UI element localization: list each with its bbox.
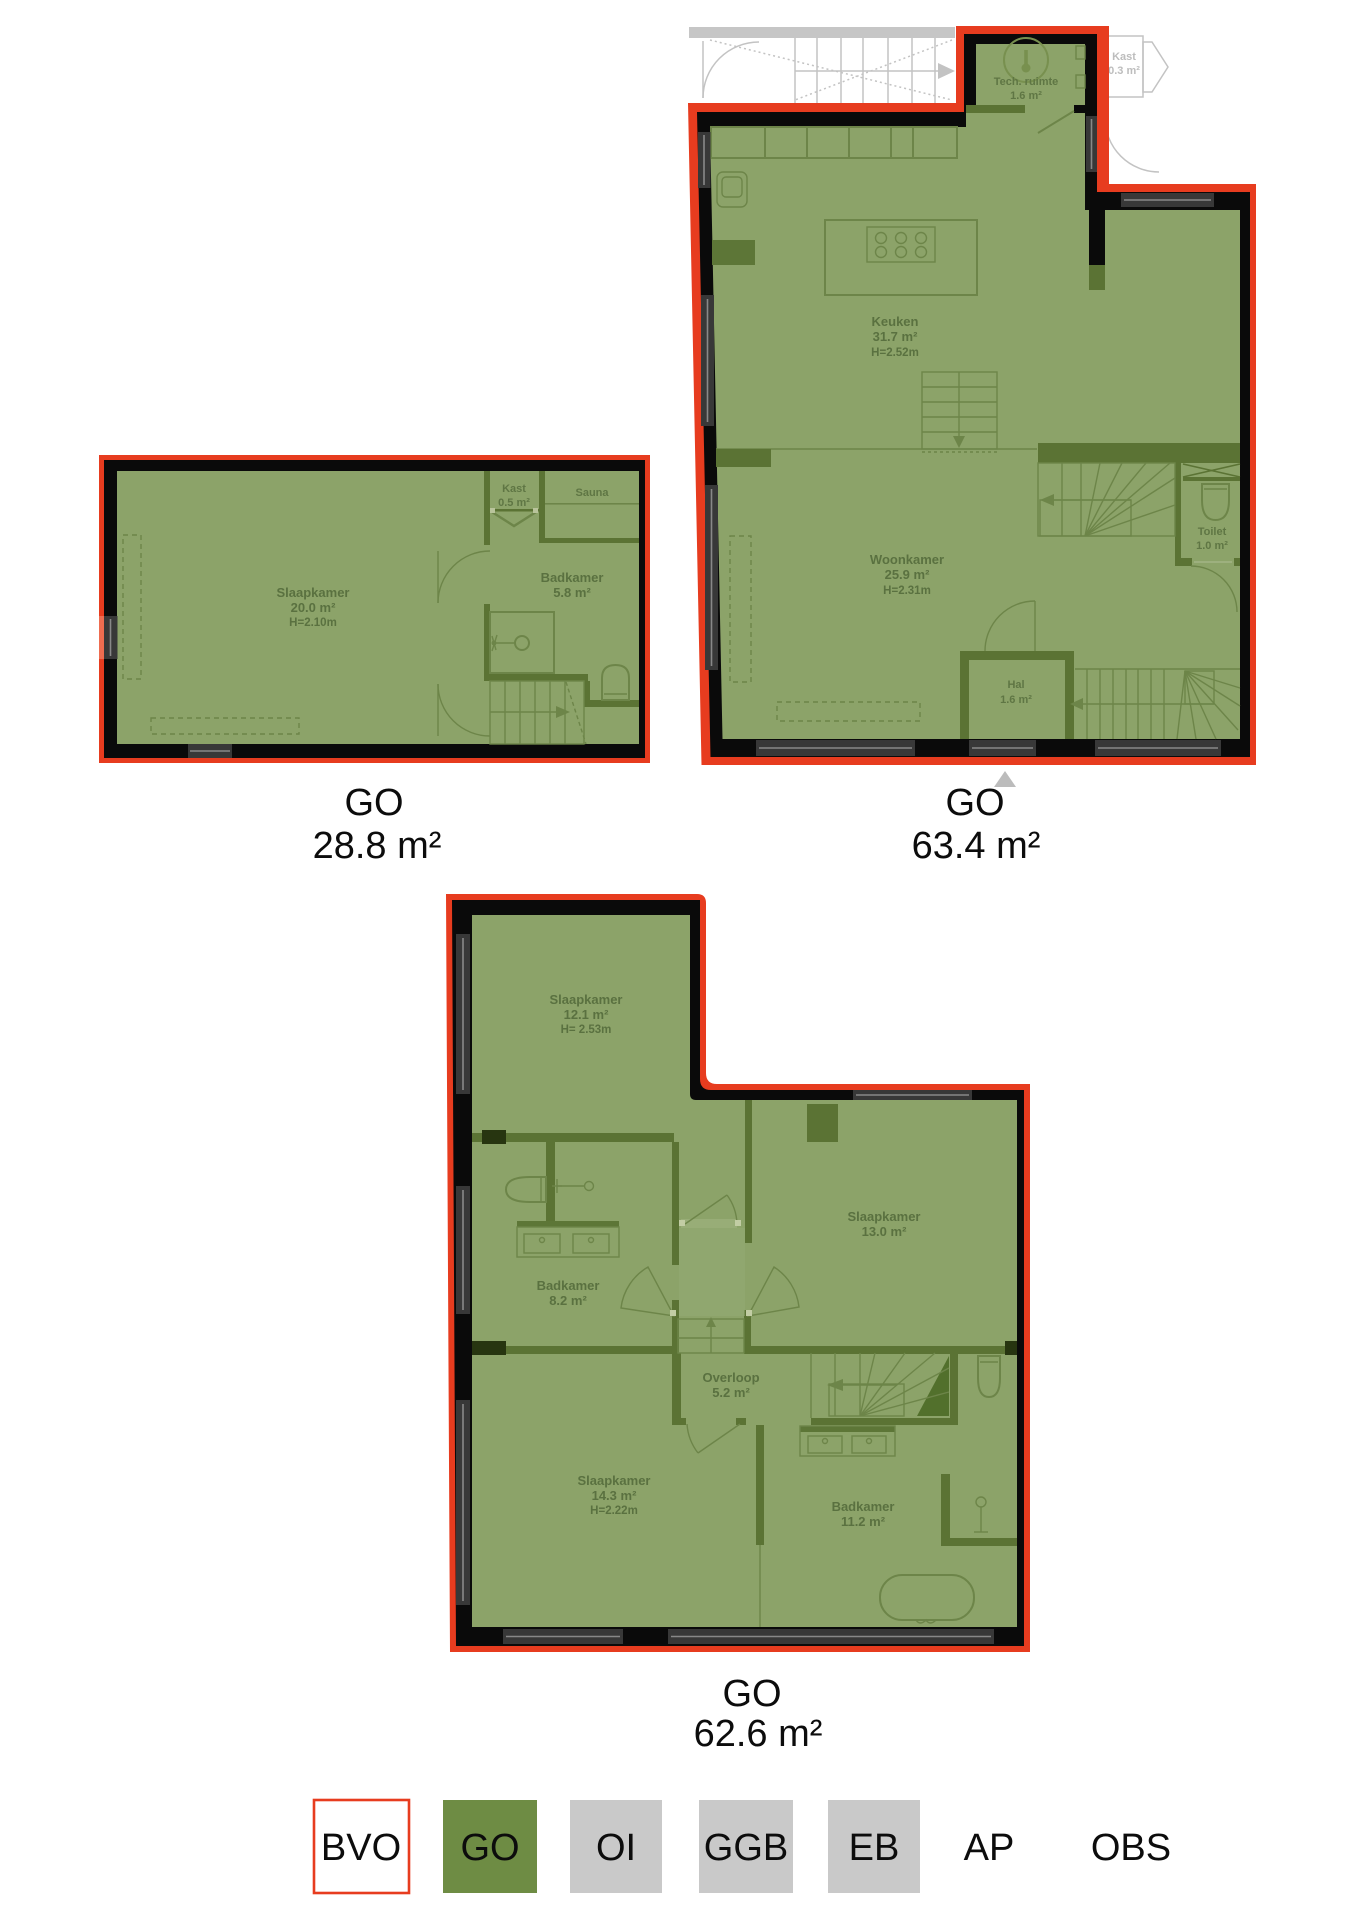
svg-text:5.8 m²: 5.8 m² — [553, 585, 591, 600]
svg-text:EB: EB — [849, 1827, 900, 1869]
svg-text:Slaapkamer: Slaapkamer — [277, 585, 350, 600]
svg-text:GO: GO — [722, 1673, 781, 1715]
svg-text:Badkamer: Badkamer — [541, 570, 604, 585]
svg-text:AP: AP — [964, 1827, 1015, 1869]
svg-text:Badkamer: Badkamer — [832, 1499, 895, 1514]
svg-text:GGB: GGB — [704, 1827, 788, 1869]
svg-text:Woonkamer: Woonkamer — [870, 552, 944, 567]
svg-text:1.0 m²: 1.0 m² — [1196, 540, 1228, 552]
svg-text:Slaapkamer: Slaapkamer — [578, 1473, 651, 1488]
svg-text:14.3 m²: 14.3 m² — [592, 1488, 637, 1503]
svg-text:11.2 m²: 11.2 m² — [841, 1514, 886, 1529]
svg-text:1.6 m²: 1.6 m² — [1000, 694, 1032, 706]
svg-text:13.0 m²: 13.0 m² — [862, 1224, 907, 1239]
svg-text:GO: GO — [344, 782, 403, 824]
svg-text:Overloop: Overloop — [702, 1370, 759, 1385]
svg-text:Kast: Kast — [502, 483, 526, 495]
svg-text:25.9 m²: 25.9 m² — [885, 567, 930, 582]
svg-text:Tech. ruimte: Tech. ruimte — [994, 76, 1059, 88]
svg-text:H=2.31m: H=2.31m — [883, 585, 931, 597]
svg-text:Keuken: Keuken — [872, 314, 919, 329]
svg-text:Hal: Hal — [1007, 679, 1024, 691]
svg-text:Slaapkamer: Slaapkamer — [848, 1209, 921, 1224]
svg-text:GO: GO — [460, 1827, 519, 1869]
svg-text:63.4 m²: 63.4 m² — [912, 825, 1041, 867]
svg-text:0.3 m²: 0.3 m² — [1108, 65, 1140, 77]
svg-text:5.2 m²: 5.2 m² — [712, 1385, 750, 1400]
svg-text:31.7 m²: 31.7 m² — [873, 329, 918, 344]
svg-text:H=2.10m: H=2.10m — [289, 617, 337, 629]
svg-text:H= 2.53m: H= 2.53m — [561, 1024, 612, 1036]
svg-text:12.1 m²: 12.1 m² — [564, 1007, 609, 1022]
svg-text:1.6 m²: 1.6 m² — [1010, 90, 1042, 102]
svg-text:Badkamer: Badkamer — [537, 1278, 600, 1293]
svg-text:62.6 m²: 62.6 m² — [694, 1713, 823, 1755]
svg-text:GO: GO — [945, 782, 1004, 824]
svg-text:Sauna: Sauna — [575, 487, 609, 499]
svg-text:OI: OI — [596, 1827, 636, 1869]
svg-text:28.8 m²: 28.8 m² — [313, 825, 442, 867]
svg-text:H=2.52m: H=2.52m — [871, 347, 919, 359]
svg-text:Toilet: Toilet — [1198, 526, 1227, 538]
svg-text:BVO: BVO — [321, 1827, 401, 1869]
svg-text:H=2.22m: H=2.22m — [590, 1505, 638, 1517]
svg-text:0.5 m²: 0.5 m² — [498, 497, 530, 509]
svg-text:Slaapkamer: Slaapkamer — [550, 992, 623, 1007]
svg-text:Kast: Kast — [1112, 51, 1136, 63]
svg-text:8.2 m²: 8.2 m² — [549, 1293, 587, 1308]
svg-text:20.0 m²: 20.0 m² — [291, 600, 336, 615]
svg-text:OBS: OBS — [1091, 1827, 1171, 1869]
